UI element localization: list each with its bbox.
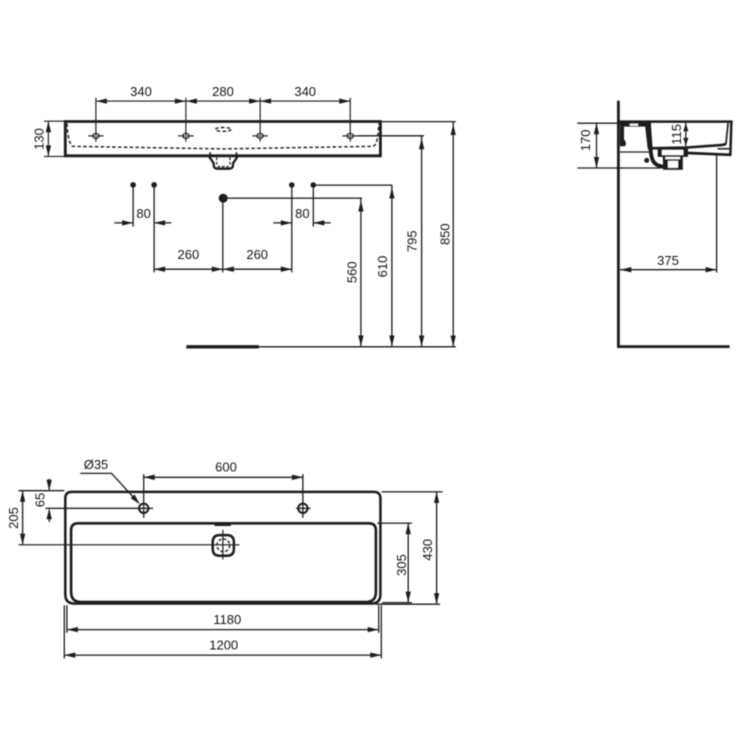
svg-text:205: 205 <box>6 507 21 529</box>
svg-text:375: 375 <box>657 253 679 268</box>
svg-text:65: 65 <box>33 493 48 507</box>
svg-text:305: 305 <box>394 554 409 576</box>
svg-text:795: 795 <box>405 230 420 252</box>
svg-text:340: 340 <box>130 84 152 99</box>
svg-text:610: 610 <box>375 256 390 278</box>
svg-text:260: 260 <box>246 247 268 262</box>
svg-text:600: 600 <box>215 460 237 475</box>
svg-text:260: 260 <box>178 247 200 262</box>
svg-text:280: 280 <box>212 84 234 99</box>
svg-text:340: 340 <box>294 84 316 99</box>
svg-text:1200: 1200 <box>209 637 238 652</box>
svg-text:115: 115 <box>669 124 684 145</box>
svg-text:1180: 1180 <box>213 612 241 627</box>
svg-text:Ø35: Ø35 <box>84 457 109 472</box>
svg-text:130: 130 <box>32 128 47 150</box>
svg-text:850: 850 <box>438 223 453 245</box>
svg-text:430: 430 <box>420 539 435 561</box>
svg-text:80: 80 <box>295 206 309 221</box>
svg-text:170: 170 <box>578 130 593 152</box>
svg-text:80: 80 <box>136 206 150 221</box>
svg-text:560: 560 <box>345 261 360 283</box>
